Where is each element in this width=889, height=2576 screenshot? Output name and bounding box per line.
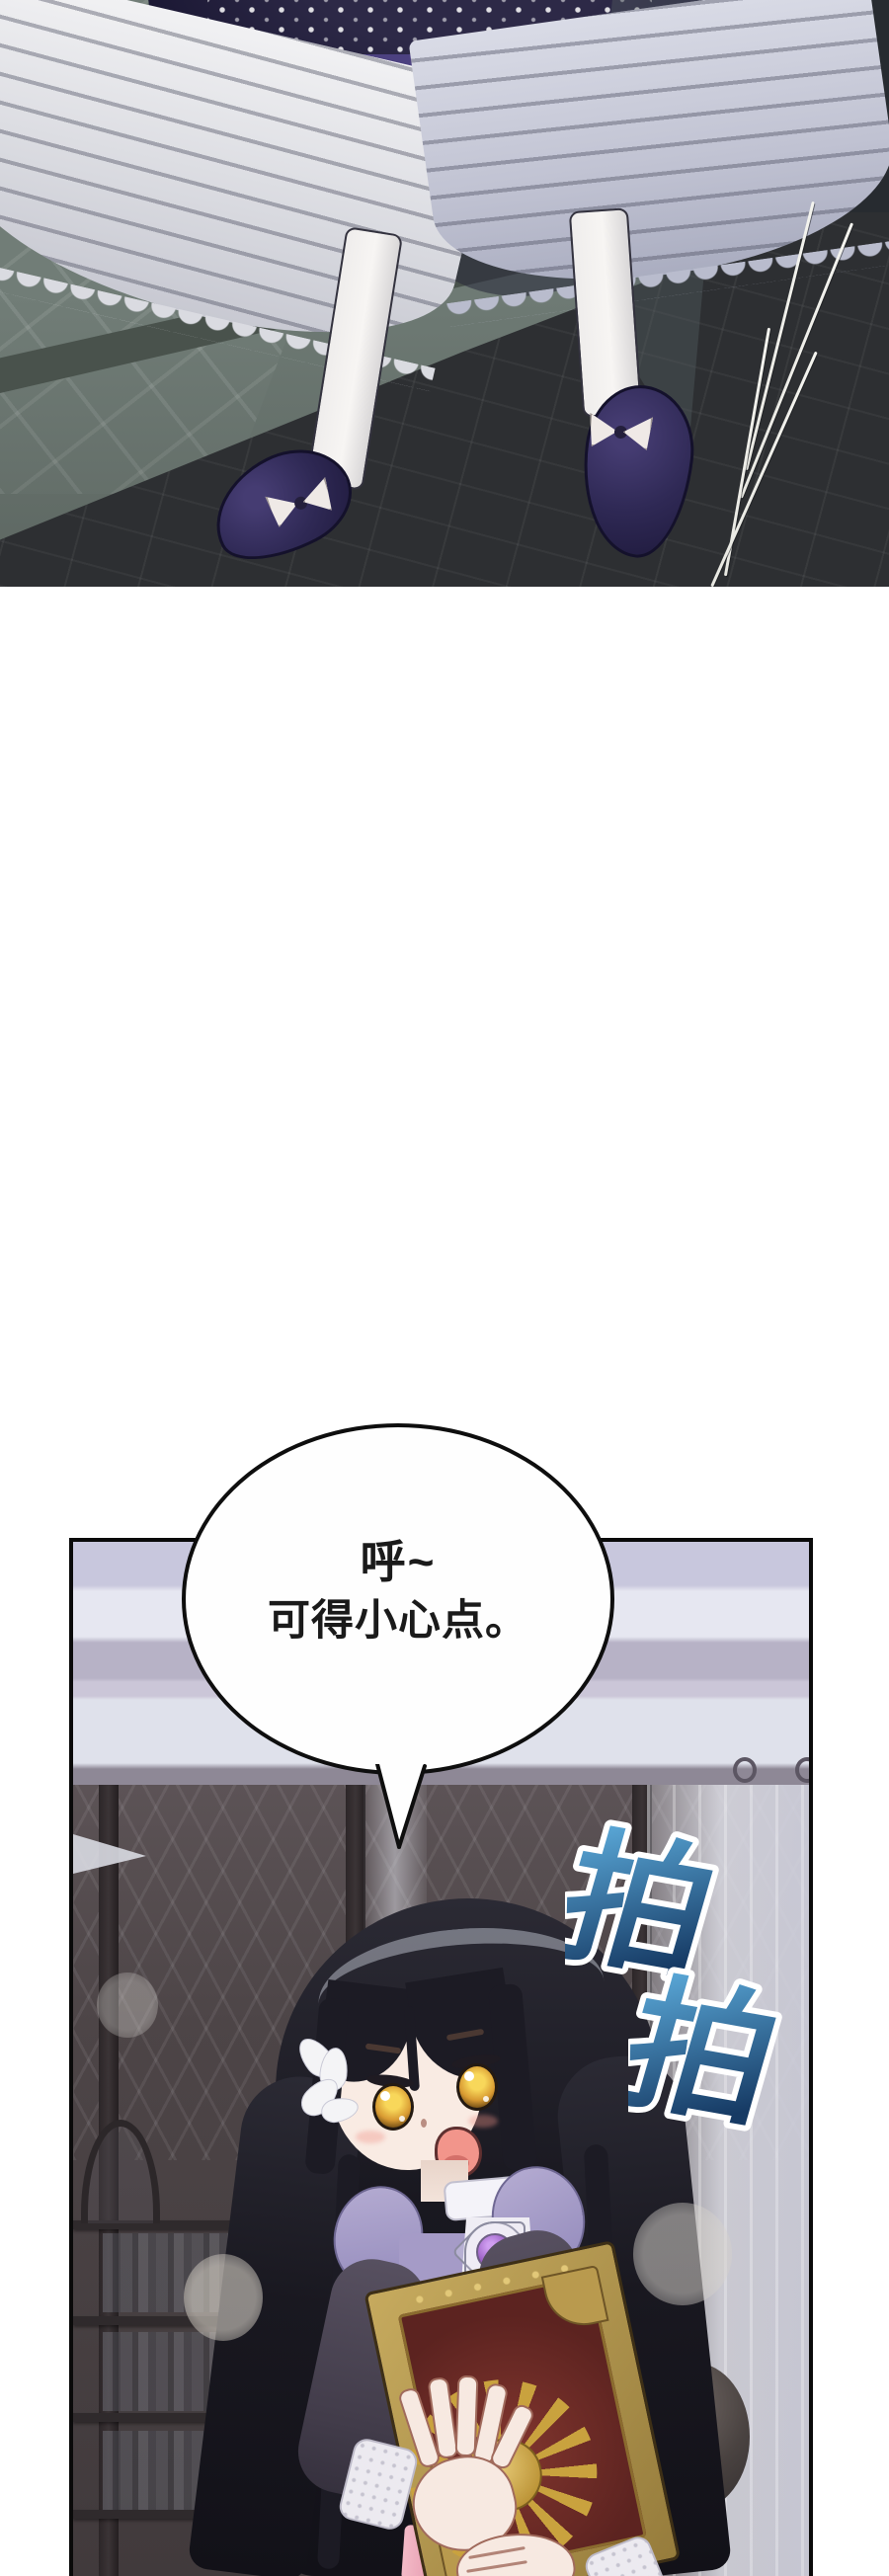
bow-knot: [292, 495, 308, 511]
speech-line-2: 可得小心点。: [268, 1591, 528, 1650]
speech-bubble: 呼~ 可得小心点。: [182, 1423, 614, 1775]
webtoon-page: 拍 拍 呼~ 可得小心点。: [0, 0, 889, 2576]
nose: [421, 2119, 427, 2128]
blush-right: [468, 2115, 498, 2128]
dust-mote: [184, 2254, 263, 2341]
curtain-hook: [733, 1757, 757, 1783]
speech-bubble-tail: [364, 1764, 439, 1855]
eye-highlight: [464, 2071, 474, 2081]
dust-mote: [97, 1972, 158, 2038]
panel-feet-on-steps: [0, 0, 889, 587]
speech-line-1: 呼~: [361, 1534, 437, 1591]
eye-highlight: [483, 2096, 489, 2102]
eye-highlight: [399, 2116, 405, 2122]
amber-eye-left: [372, 2083, 414, 2131]
right-shoe-bow: [588, 413, 653, 450]
blush-left: [356, 2131, 385, 2143]
amber-eye-right: [456, 2063, 498, 2111]
dust-mote: [633, 2203, 732, 2305]
bow-knot: [614, 426, 628, 440]
sfx-glyph: 拍: [628, 1963, 796, 2145]
petticoat-ruffles-right: [408, 0, 889, 305]
curtain-hook: [795, 1757, 813, 1783]
sfx-pat-2: 拍: [628, 1958, 796, 2145]
eye-highlight: [380, 2091, 390, 2101]
